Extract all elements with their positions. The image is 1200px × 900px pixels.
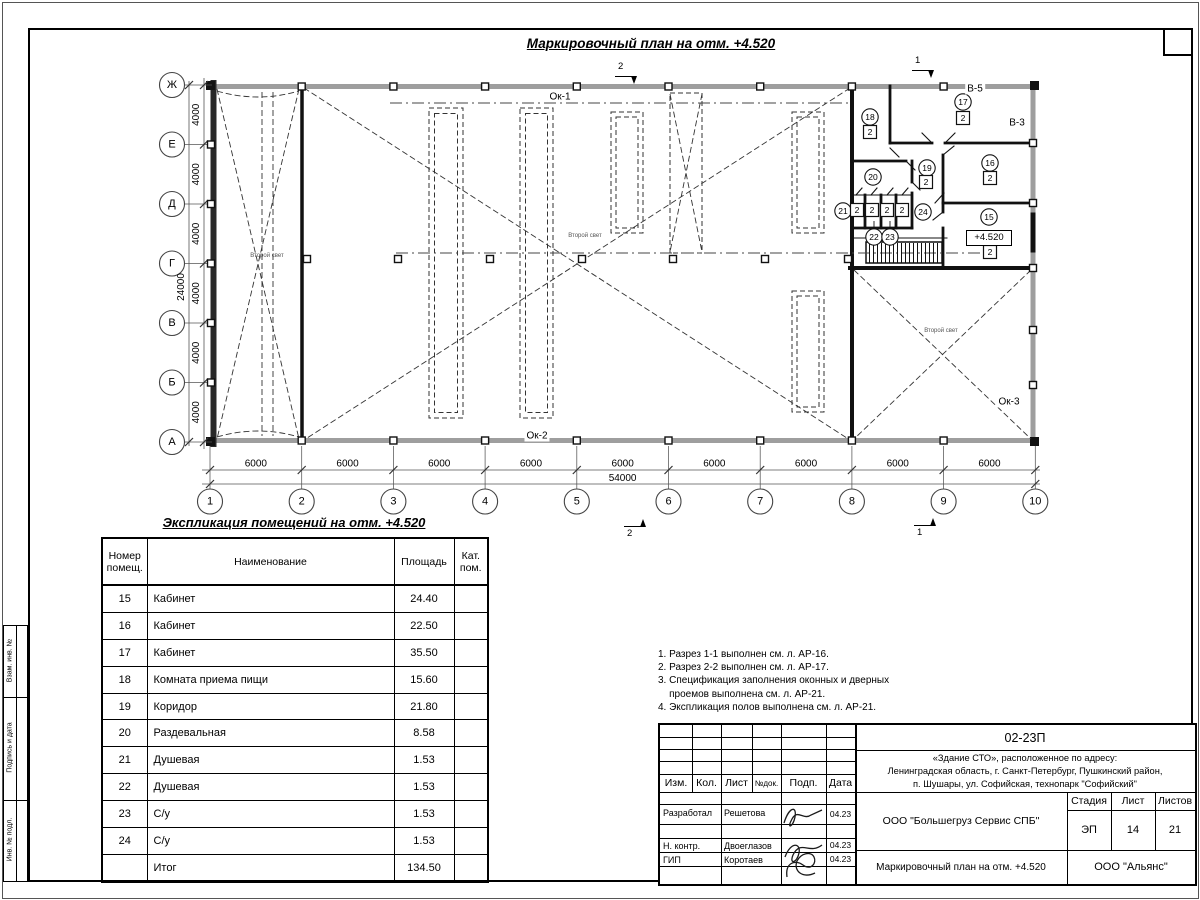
column-marker [390,437,397,444]
tb-company: ООО "Большегруз Сервис СПБ" [855,792,1067,850]
vent-label-v5: В-5 [965,84,985,95]
column-marker [670,256,677,263]
room-number-label: 23 [885,232,895,242]
schedule-cell: Комната приема пищи [147,666,394,693]
schedule-cell: 16 [102,612,147,639]
room-category-label: 2 [855,205,860,215]
grid-axis-col-label: 5 [574,496,580,508]
dim-label-row: 4000 [191,341,202,364]
grid-axis-row-label: В [168,317,175,329]
tb-col-ndok: №док. [752,774,781,792]
tb-doc-number: 02-23П [855,725,1195,750]
room-category-label: 2 [868,127,873,137]
room-category-label: 2 [870,205,875,215]
grid-axis-row-label: Е [168,139,175,151]
column-marker [395,256,402,263]
window-label-ok3: Ок-3 [996,397,1021,408]
schedule-cell: 22 [102,774,147,801]
tb-role-date: 04.23 [826,838,855,852]
schedule-cell: Кабинет [147,612,394,639]
tb-role-date: 04.23 [826,804,855,824]
schedule-cell [454,747,488,774]
room-category-label: 2 [900,205,905,215]
schedule-row: 21Душевая1.53 [102,747,488,774]
tb-col-kol: Кол. [692,774,721,792]
room-number-label: 20 [868,172,878,182]
titleblock-line [660,749,855,750]
column-marker [848,437,855,444]
schedule-row: 16Кабинет22.50 [102,612,488,639]
room-number-label: 17 [958,97,968,107]
column-marker [848,83,855,90]
room-category-label: 2 [988,247,993,257]
notes: 1. Разрез 1-1 выполнен см. л. АР-16.2. Р… [658,648,889,714]
schedule-row: 22Душевая1.53 [102,774,488,801]
grid-axis-col-label: 4 [482,496,488,508]
schedule-title: Экспликация помещений на отм. +4.520 [101,515,487,530]
dim-label-row: 4000 [191,282,202,305]
schedule-cell [454,693,488,720]
schedule-row: 19Коридор21.80 [102,693,488,720]
dim-label-col: 6000 [520,459,543,470]
note-line: проемов выполнена см. л. АР-21. [658,688,889,701]
tb-sheet-label: Лист [1111,792,1155,810]
tb-role: ГИП [663,855,721,865]
column-marker [757,83,764,90]
tb-role-date: 04.23 [826,852,855,866]
schedule-cell [454,666,488,693]
schedule-row: 15Кабинет24.40 [102,585,488,612]
drawing-sheet: Взам. инв. № Подпись и дата Инв. № подл.… [0,0,1200,900]
schedule-cell: 134.50 [394,854,454,881]
schedule-cell: 1.53 [394,774,454,801]
grid-axis-col-label: 1 [207,496,213,508]
schedule-cell: 21.80 [394,693,454,720]
column-marker [298,83,305,90]
room-number-label: 19 [922,163,932,173]
titleblock-line [660,761,855,762]
tb-stage-label: Стадия [1067,792,1111,810]
dim-label-col-total: 54000 [609,473,637,484]
room-number-label: 22 [869,232,879,242]
schedule-header-cell: Номер помещ. [102,538,147,585]
schedule-cell: С/у [147,801,394,828]
schedule-table: Номер помещ.НаименованиеПлощадьКат. пом.… [101,537,489,883]
column-marker [1030,382,1037,389]
grid-axis-col-label: 10 [1029,496,1041,508]
column-marker [665,83,672,90]
note-line: 3. Спецификация заполнения оконных и две… [658,674,889,687]
dim-label-col: 6000 [887,459,910,470]
column-marker [573,437,580,444]
schedule-cell: 20 [102,720,147,747]
column-marker [304,256,311,263]
dim-label-col: 6000 [336,459,359,470]
second-light-note: Второй свет [568,233,602,240]
tb-role-name: Двоеглазов [724,841,781,851]
schedule-cell [102,854,147,881]
schedule-cell: 15.60 [394,666,454,693]
schedule-cell: 1.53 [394,747,454,774]
dim-label-col: 6000 [795,459,818,470]
schedule-cell [454,801,488,828]
window-label-ok2: Ок-2 [524,431,549,442]
dim-label-col: 6000 [978,459,1001,470]
room-number-label: 24 [918,207,928,217]
dim-label-row: 4000 [191,222,202,245]
tb-sheets-value: 21 [1155,810,1195,850]
schedule-cell: Душевая [147,774,394,801]
dim-label-col: 6000 [612,459,635,470]
schedule-header-cell: Кат. пом. [454,538,488,585]
room-number-label: 21 [838,206,848,216]
grid-axis-col-label: 3 [390,496,396,508]
grid-axis-col-label: 9 [941,496,947,508]
column-marker [298,437,305,444]
grid-axis-row-label: А [168,436,176,448]
tb-sheet-value: 14 [1111,810,1155,850]
room-category-label: 2 [961,113,966,123]
tb-role-name: Коротаев [724,855,781,865]
tb-address-line: «Здание СТО», расположенное по адресу: [855,752,1195,765]
second-light-note: Второй свет [250,253,284,260]
schedule-cell: Раздевальная [147,720,394,747]
schedule-cell: Кабинет [147,639,394,666]
column-marker [390,83,397,90]
schedule-cell [454,612,488,639]
schedule-cell [454,854,488,881]
schedule-cell: 17 [102,639,147,666]
schedule-row: 18Комната приема пищи15.60 [102,666,488,693]
dim-label-row-total: 24000 [176,273,187,301]
schedule-row: 17Кабинет35.50 [102,639,488,666]
dim-label-row: 4000 [191,163,202,186]
schedule-cell: Душевая [147,747,394,774]
room-schedule-table: Номер помещ.НаименованиеПлощадьКат. пом.… [101,537,489,883]
tb-drawing-name: Маркировочный план на отм. +4.520 [855,850,1067,884]
schedule-cell: С/у [147,828,394,855]
note-line: 1. Разрез 1-1 выполнен см. л. АР-16. [658,648,889,661]
column-marker [1030,200,1037,207]
schedule-cell [454,828,488,855]
dim-label-col: 6000 [703,459,726,470]
tb-role: Н. контр. [663,841,721,851]
column-marker [487,256,494,263]
note-line: 2. Разрез 2-2 выполнен см. л. АР-17. [658,661,889,674]
schedule-cell [454,720,488,747]
titleblock-line [855,750,1195,751]
schedule-cell: 22.50 [394,612,454,639]
schedule-cell: 23 [102,801,147,828]
dim-label-row: 4000 [191,103,202,126]
titleblock-line [660,737,855,738]
column-marker [482,437,489,444]
room-number-label: 16 [985,158,995,168]
column-marker [940,83,947,90]
schedule-header-cell: Наименование [147,538,394,585]
tb-address-line: Ленинградская область, г. Санкт-Петербур… [855,765,1195,778]
column-marker [940,437,947,444]
tb-sheets-label: Листов [1155,792,1195,810]
column-marker [1030,140,1037,147]
schedule-cell [454,639,488,666]
tb-org: ООО "Альянс" [1067,850,1195,884]
schedule-cell: 18 [102,666,147,693]
column-marker [1030,327,1037,334]
grid-axis-row-label: Ж [167,79,177,91]
column-marker [208,320,215,327]
dim-label-col: 6000 [245,459,268,470]
column-marker [665,437,672,444]
schedule-row: 23С/у1.53 [102,801,488,828]
room-category-label: 2 [988,173,993,183]
grid-axis-row-label: Г [169,258,175,270]
column-marker [762,256,769,263]
schedule-cell: 24.40 [394,585,454,612]
schedule-cell: 1.53 [394,828,454,855]
room-number-label: 15 [984,212,994,222]
title-block: Изм. Кол. Лист №док. Подп. Дата Разработ… [658,723,1197,886]
grid-axis-col-label: 2 [299,496,305,508]
column-marker [573,83,580,90]
schedule-cell [454,585,488,612]
tb-role: Разработал [663,808,721,818]
column-marker [208,201,215,208]
grid-axis-col-label: 7 [757,496,763,508]
schedule-cell: 24 [102,828,147,855]
tb-address-line: п. Шушары, ул. Софийская, технопарк "Соф… [855,778,1195,791]
schedule-row: 24С/у1.53 [102,828,488,855]
column-marker [845,256,852,263]
schedule-cell [454,774,488,801]
dim-label-col: 6000 [428,459,451,470]
schedule-cell: 15 [102,585,147,612]
window-label-ok1: Ок-1 [547,92,572,103]
schedule-cell: Коридор [147,693,394,720]
second-light-note: Второй свет [924,328,958,335]
grid-axis-row-label: Д [168,198,176,210]
grid-axis-col-label: 8 [849,496,855,508]
schedule-cell: 8.58 [394,720,454,747]
room-category-label: 2 [924,177,929,187]
schedule-cell: 35.50 [394,639,454,666]
column-marker [208,141,215,148]
schedule-header-cell: Площадь [394,538,454,585]
column-marker [208,260,215,267]
schedule-row: Итог134.50 [102,854,488,881]
column-marker [579,256,586,263]
tb-col-data: Дата [826,774,855,792]
grid-axis-col-label: 6 [665,496,671,508]
note-line: 4. Экспликация полов выполнена см. л. АР… [658,701,889,714]
column-marker [757,437,764,444]
tb-role-name: Решетова [724,808,781,818]
tb-address: «Здание СТО», расположенное по адресу: Л… [855,752,1195,792]
schedule-cell: 19 [102,693,147,720]
room-category-label: 2 [885,205,890,215]
vent-label-v3: В-3 [1007,118,1027,129]
schedule-row: 20Раздевальная8.58 [102,720,488,747]
room-number-label: 18 [865,112,875,122]
column-marker [482,83,489,90]
schedule-cell: 21 [102,747,147,774]
tb-stage-value: ЭП [1067,810,1111,850]
schedule-cell: 1.53 [394,801,454,828]
tb-col-izm: Изм. [660,774,692,792]
signature-icon [781,795,826,884]
schedule-cell: Итог [147,854,394,881]
column-marker [1030,265,1037,272]
tb-col-list: Лист [721,774,752,792]
schedule-cell: Кабинет [147,585,394,612]
elevation-mark: +4.520 [966,230,1012,246]
column-marker [208,379,215,386]
tb-col-podp: Подп. [781,774,826,792]
grid-axis-row-label: Б [168,377,175,389]
dim-label-row: 4000 [191,401,202,424]
